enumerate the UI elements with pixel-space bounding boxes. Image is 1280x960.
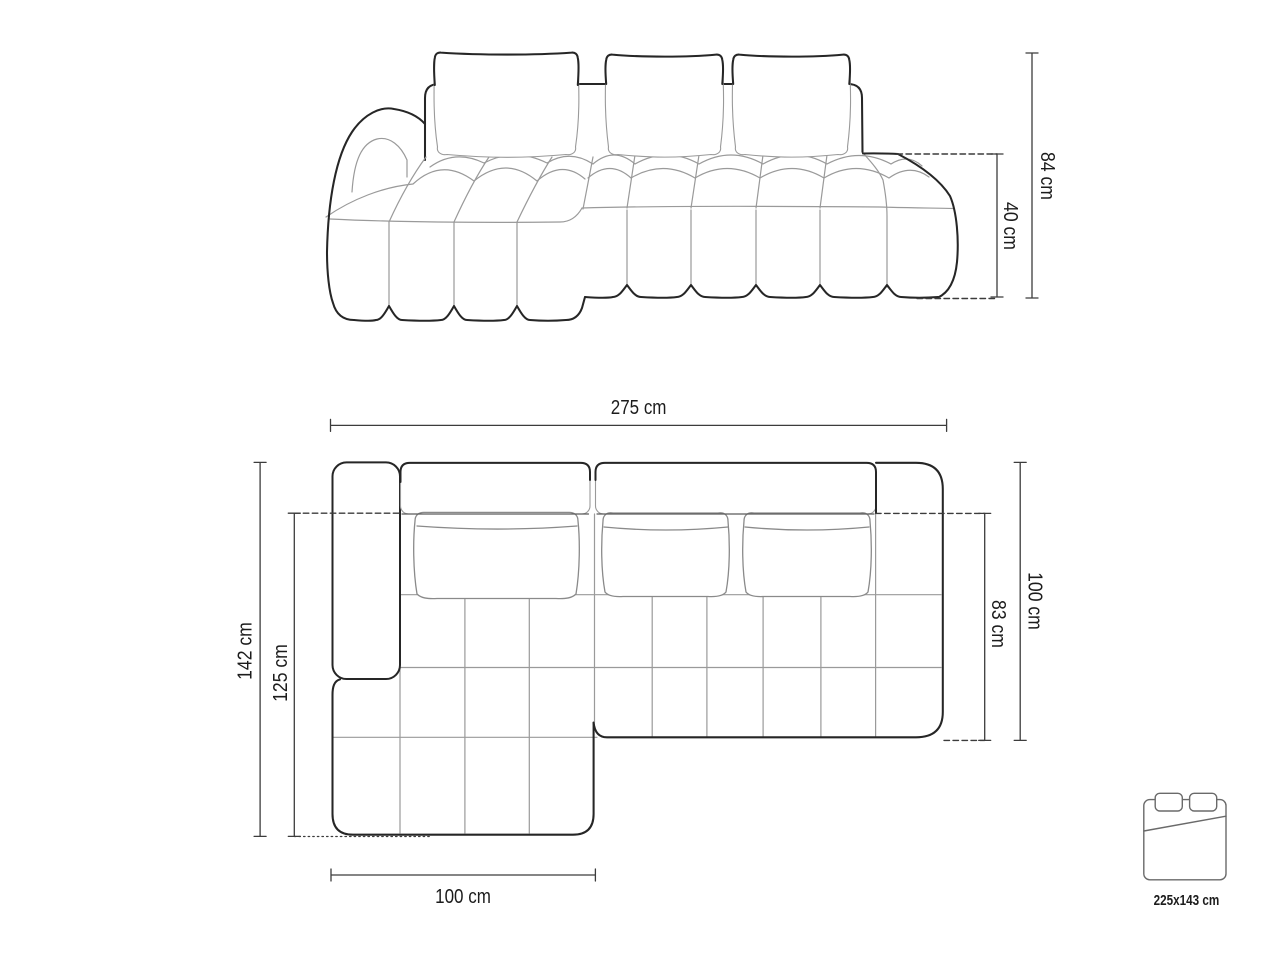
svg-text:125 cm: 125 cm xyxy=(269,644,291,702)
svg-text:100 cm: 100 cm xyxy=(435,885,491,908)
svg-text:225x143 cm: 225x143 cm xyxy=(1154,892,1220,909)
svg-text:84 cm: 84 cm xyxy=(1037,152,1059,200)
svg-text:100 cm: 100 cm xyxy=(1024,572,1046,630)
svg-text:275 cm: 275 cm xyxy=(611,396,667,419)
svg-text:142 cm: 142 cm xyxy=(233,622,255,680)
svg-text:40 cm: 40 cm xyxy=(1000,202,1022,250)
svg-text:83 cm: 83 cm xyxy=(988,600,1010,648)
